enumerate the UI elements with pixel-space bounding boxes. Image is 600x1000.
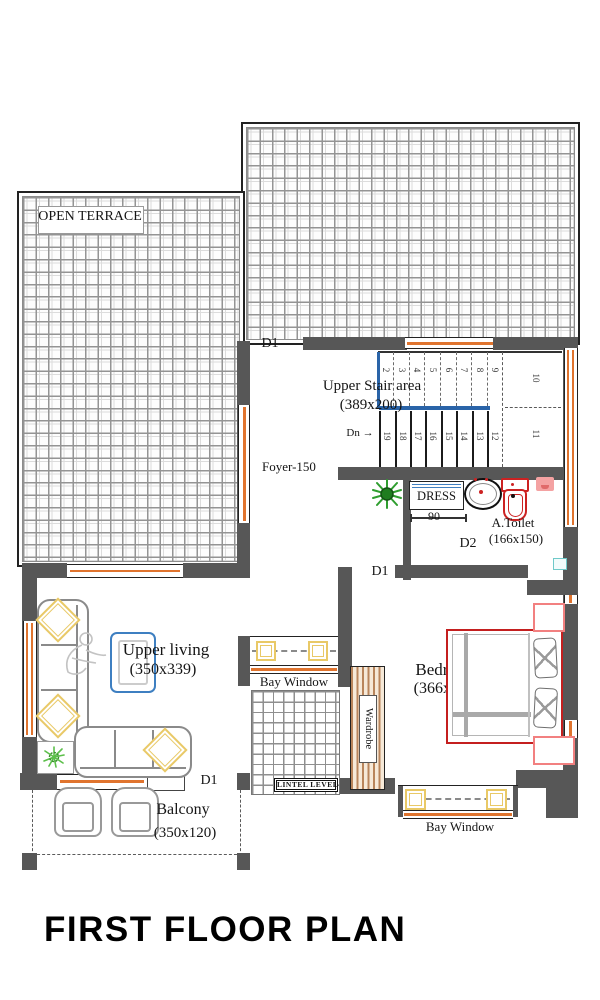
niche-square (553, 558, 567, 570)
wall (20, 773, 57, 790)
sofa-divider (114, 730, 116, 768)
stair-number: 6 (444, 363, 454, 377)
plant-icon (41, 744, 67, 770)
shower-head (541, 485, 549, 489)
dress-label: DRESS (410, 490, 463, 503)
terrace-upper-right (241, 122, 580, 345)
stair-tread (472, 411, 474, 467)
stair-number: 16 (428, 429, 438, 443)
stair-number: 14 (459, 429, 469, 443)
door-label-d1-bedroom: D1 (364, 565, 396, 580)
wall (546, 788, 578, 818)
washbasin-inner (469, 483, 497, 505)
stair-tread (471, 352, 472, 406)
stair-area-size: (389x200) (298, 398, 444, 414)
living-label: Upper living (118, 641, 214, 659)
wall (527, 580, 578, 595)
window (250, 665, 338, 674)
stair-tread (456, 411, 458, 467)
bay-window-post (405, 789, 426, 810)
living-size: (350x339) (119, 662, 207, 679)
sofa-divider (41, 689, 77, 691)
stair-number: 17 (413, 429, 423, 443)
stair-number: 3 (397, 363, 407, 377)
window-glass-line (251, 668, 337, 671)
toilet-size: (166x150) (481, 532, 551, 546)
stair-number: 18 (398, 429, 408, 443)
balcony-edge (32, 790, 33, 856)
stair-number: 11 (531, 427, 541, 441)
stair-number: 19 (382, 429, 392, 443)
dress-rod-line (412, 484, 461, 486)
bedside-window-box (533, 736, 575, 765)
stair-tread (487, 352, 488, 406)
wall (237, 773, 250, 790)
lintel-level-label: LINTEL LEVEL (276, 780, 336, 790)
bed-runner (464, 633, 468, 737)
foyer-label: Foyer-150 (262, 460, 316, 474)
toilet-bowl-inner (508, 494, 523, 517)
pillow (533, 637, 558, 678)
stair-tread (456, 352, 457, 406)
stair-number: 2 (381, 363, 391, 377)
wall (395, 565, 528, 578)
stair-number: 5 (428, 363, 438, 377)
wall (516, 770, 578, 788)
window-glass-line (60, 780, 144, 783)
shower-icon (536, 477, 554, 491)
balcony-size: (350x120) (140, 826, 230, 842)
washbasin-icon (464, 478, 502, 510)
stair-cut-line (502, 352, 503, 467)
stair-number: 15 (444, 429, 454, 443)
person-sketch (52, 630, 108, 680)
bay-window-post (308, 641, 328, 661)
bedside-window-box (533, 603, 565, 632)
stair-tread (425, 411, 427, 467)
page-title: FIRST FLOOR PLAN (44, 910, 406, 950)
bay-window-left-label: Bay Window (252, 675, 336, 689)
door-label-d2: D2 (452, 537, 484, 552)
window-glass-line (31, 623, 33, 735)
bay-window-post (256, 641, 276, 661)
window-glass-line (569, 721, 572, 737)
door-label-d1-balcony: D1 (193, 774, 225, 789)
plant-icon (370, 477, 404, 511)
stair-number: 12 (490, 429, 500, 443)
dress-rod-line (412, 487, 461, 489)
wall (303, 337, 407, 350)
window-glass-line (567, 350, 569, 525)
wall (183, 563, 241, 578)
window-glass-line (404, 813, 512, 816)
window (23, 621, 37, 737)
washbasin-tap (485, 478, 488, 481)
window-glass-line (407, 342, 493, 345)
tile-floor (246, 127, 575, 340)
wall (513, 786, 518, 817)
stair-tread (395, 411, 397, 467)
floor-plan: OPEN TERRACE (0, 0, 600, 1000)
balcony-edge (240, 790, 241, 856)
stair-tread (441, 411, 443, 467)
terrace-left (17, 191, 245, 567)
tile-floor (22, 196, 240, 562)
toilet-dot (511, 494, 515, 498)
washbasin-drain (479, 490, 483, 494)
stair-number: 7 (459, 363, 469, 377)
bed (446, 629, 563, 744)
stair-tread (487, 411, 489, 467)
wall (238, 636, 250, 686)
stair-number: 8 (475, 363, 485, 377)
window (403, 810, 513, 819)
bay-window-bottom-label: Bay Window (400, 820, 520, 834)
toilet-label: A.Toilet (483, 516, 543, 530)
window (67, 564, 183, 578)
balcony-label: Balcony (138, 802, 228, 819)
dimension-tick (465, 514, 467, 522)
window (405, 337, 495, 349)
stair-number: 13 (475, 429, 485, 443)
window (238, 405, 250, 523)
stair-top-line (378, 351, 562, 353)
open-terrace-label: OPEN TERRACE (38, 210, 142, 225)
stair-number: 4 (412, 363, 422, 377)
door-label-d1-top: D1 (254, 337, 286, 352)
pillow (533, 687, 558, 728)
balcony-edge (32, 854, 242, 855)
wardrobe: Wardrobe (350, 666, 385, 790)
bay-window-post (486, 789, 507, 810)
window-glass-line (243, 407, 246, 521)
wall (22, 563, 67, 578)
dress-dimension: 90 (420, 510, 448, 523)
stair-area-label: Upper Stair area (299, 379, 445, 395)
dress-closet: DRESS (409, 481, 464, 510)
window-glass-line (26, 623, 28, 735)
window-glass-line (572, 350, 574, 525)
toilet-icon (500, 478, 528, 520)
washbasin-tap (474, 478, 477, 481)
stair-number: 9 (490, 363, 500, 377)
bed-runner (453, 712, 531, 717)
stair-landing-line (505, 407, 561, 408)
stair-number: 10 (531, 371, 541, 385)
stair-down-label: Dn → (340, 428, 380, 440)
dimension-tick (410, 514, 412, 522)
window-glass-line (70, 570, 180, 573)
balcony-chair (54, 787, 102, 837)
toilet-dot (511, 483, 514, 486)
balcony-corner-post (237, 853, 250, 870)
window (564, 348, 578, 527)
stair-tread (410, 411, 412, 467)
balcony-corner-post (22, 853, 37, 870)
bed-fold-line (528, 633, 530, 737)
wardrobe-label: Wardrobe (359, 695, 377, 763)
